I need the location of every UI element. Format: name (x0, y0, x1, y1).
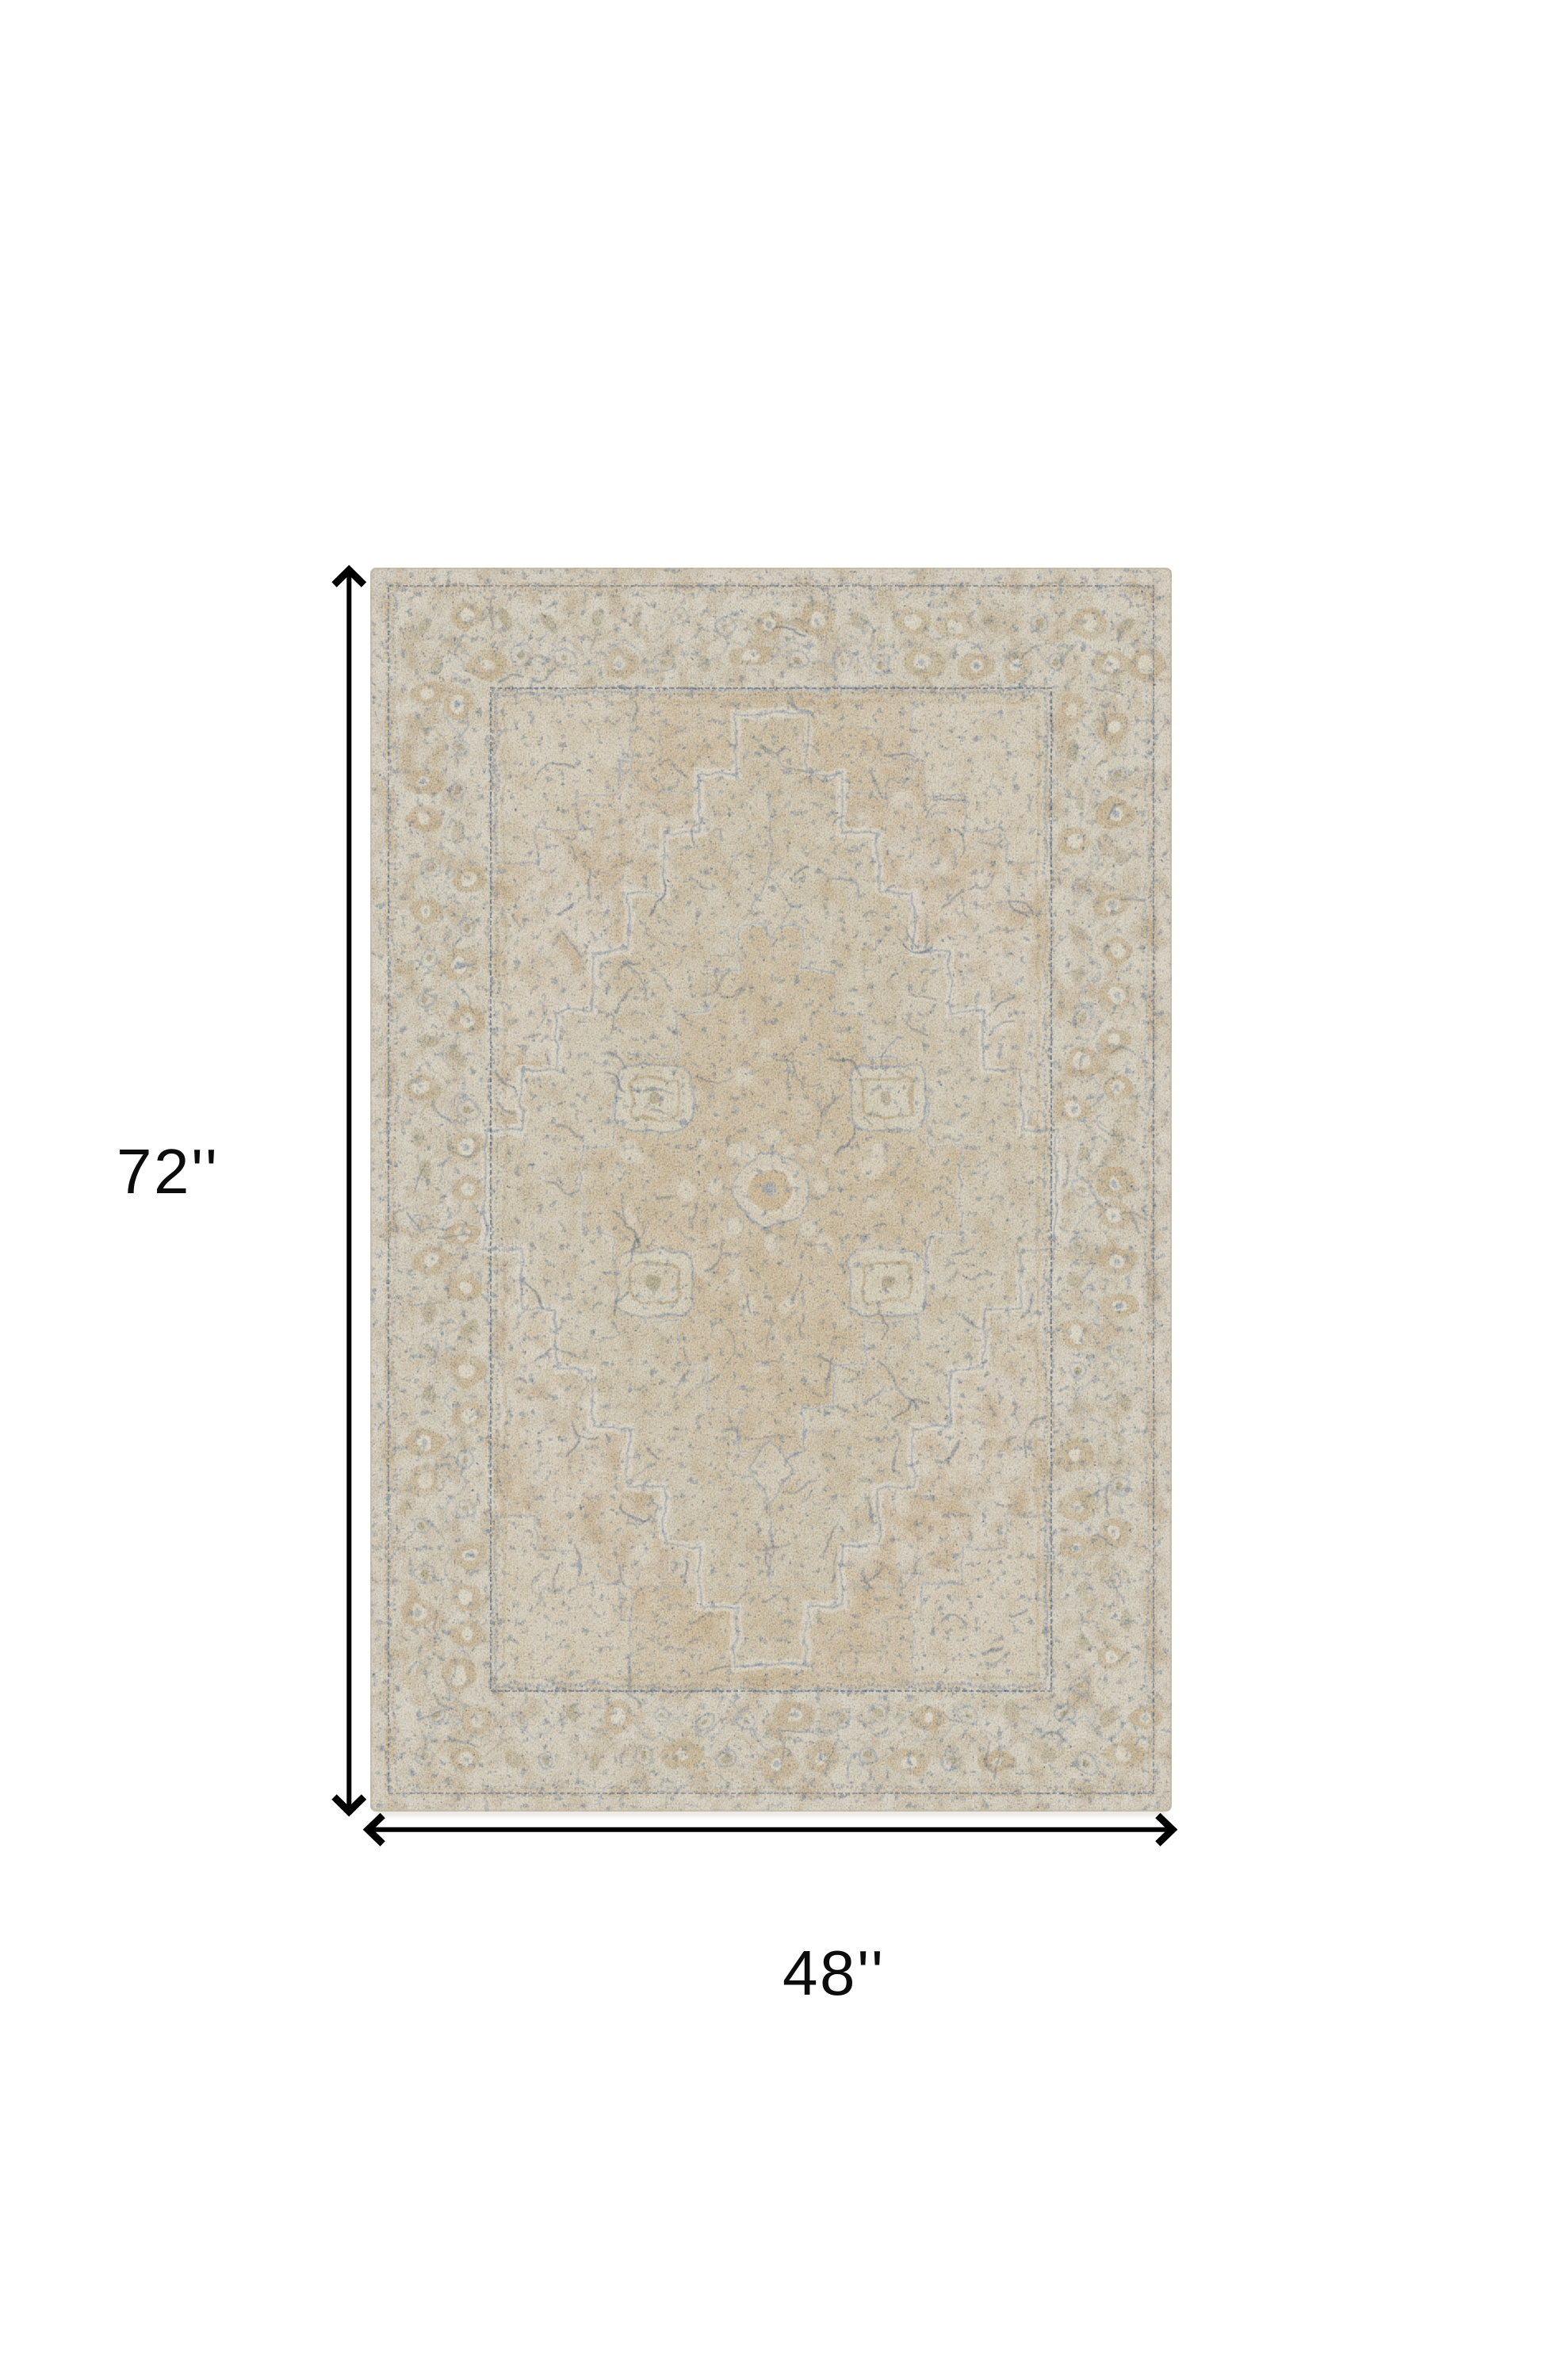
svg-text:72'': 72'' (117, 1136, 220, 1207)
svg-text:48'': 48'' (782, 1938, 886, 2008)
